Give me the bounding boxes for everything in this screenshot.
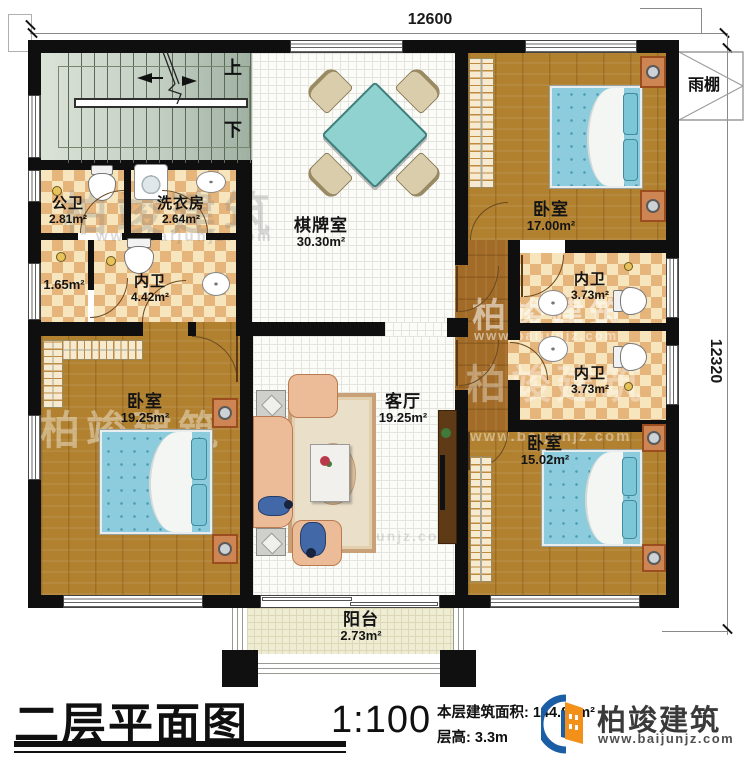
pillow — [191, 438, 207, 480]
window — [666, 345, 679, 405]
wall — [447, 318, 468, 337]
floor-height-value: 3.3m — [475, 730, 508, 746]
sink — [202, 272, 230, 296]
title-underline — [14, 741, 346, 747]
closet-floor — [41, 240, 88, 322]
pillow — [191, 484, 207, 526]
sink — [538, 336, 568, 362]
wall — [508, 380, 520, 420]
wall — [520, 323, 679, 331]
dimension-line-right — [727, 33, 728, 635]
door-leaf — [456, 340, 458, 386]
floor-area-label: 本层建筑面积: — [437, 705, 529, 721]
pillow — [622, 457, 637, 496]
balcony-railing — [232, 662, 468, 674]
sliding-door-panel — [350, 602, 438, 606]
window — [28, 170, 41, 202]
bed-sheet — [587, 88, 624, 186]
bed — [100, 430, 212, 534]
extension-line — [662, 631, 727, 632]
floor-height-label: 层高: — [437, 730, 471, 746]
side-table — [256, 528, 286, 556]
brand-website: www.baijunjz.com — [598, 731, 734, 746]
nightstand — [642, 424, 666, 452]
wall — [666, 405, 679, 608]
canopy-label: 雨棚 — [688, 71, 720, 95]
wardrobe — [43, 340, 63, 408]
wall — [28, 40, 41, 95]
balcony-floor — [247, 608, 453, 654]
window — [666, 258, 679, 318]
plant — [441, 428, 451, 438]
wall — [455, 240, 468, 265]
floorplan-page: { "plan": { "dim_top": "12600", "dim_rig… — [0, 0, 750, 763]
window — [28, 415, 41, 480]
stair-direction-arrow — [135, 50, 199, 110]
window — [490, 595, 640, 608]
stairs-down-label: 下 — [224, 116, 242, 142]
wall — [455, 40, 468, 253]
column — [440, 650, 476, 687]
pillow — [622, 500, 637, 539]
ceiling-lamp — [106, 256, 116, 266]
armchair — [288, 374, 338, 418]
bed — [550, 86, 642, 188]
wardrobe — [469, 58, 494, 188]
wall — [666, 40, 679, 258]
nightstand — [640, 190, 666, 222]
bed — [542, 450, 642, 546]
person-head — [306, 548, 316, 558]
brand-logo-icon — [541, 694, 595, 754]
drawing-scale: 1:100 — [331, 699, 431, 742]
nightstand — [642, 544, 666, 572]
window — [290, 40, 403, 53]
wall — [28, 595, 63, 608]
window — [525, 40, 637, 53]
window — [28, 263, 41, 320]
wall — [28, 480, 41, 608]
bed-sheet — [585, 452, 623, 544]
tv-screen — [440, 455, 445, 510]
extension-line — [640, 8, 702, 9]
door-leaf — [236, 336, 238, 382]
coffee-table — [310, 444, 350, 502]
wall — [238, 322, 385, 336]
sliding-door-panel — [262, 597, 352, 601]
door-leaf — [521, 255, 523, 297]
ceiling-lamp — [624, 382, 633, 391]
window — [63, 595, 203, 608]
nightstand — [212, 534, 238, 564]
sink — [196, 171, 226, 193]
wall — [28, 233, 78, 240]
extension-line — [701, 8, 702, 34]
opening-floor — [385, 322, 447, 336]
door-leaf — [456, 266, 458, 312]
dimension-top-value: 12600 — [380, 11, 480, 29]
wardrobe — [55, 340, 143, 360]
wall — [508, 240, 520, 340]
wall — [565, 240, 679, 253]
nightstand — [212, 398, 238, 428]
side-table — [256, 390, 286, 418]
wall — [188, 322, 196, 336]
ceiling-lamp — [52, 186, 62, 196]
dimension-right-value: 12320 — [706, 331, 724, 391]
bed-sheet — [149, 432, 192, 532]
wardrobe — [470, 456, 492, 582]
column — [222, 650, 258, 687]
wall — [240, 336, 253, 608]
ceiling-lamp — [56, 252, 66, 262]
pillow — [623, 93, 638, 135]
wall — [124, 160, 131, 240]
wall — [28, 322, 88, 336]
title-underline — [14, 751, 346, 753]
wall — [640, 595, 679, 608]
nightstand — [640, 56, 666, 88]
wall — [236, 160, 252, 336]
person-head — [284, 500, 293, 509]
pillow — [623, 139, 638, 181]
sink — [538, 290, 568, 316]
toilet — [124, 238, 154, 274]
dimension-line-top — [30, 33, 727, 34]
wall — [88, 322, 143, 336]
ceiling-lamp — [624, 262, 633, 271]
flower-decor — [320, 456, 330, 466]
stairs-up-label: 上 — [224, 54, 242, 80]
toilet — [613, 287, 647, 315]
window — [28, 95, 41, 158]
toilet — [613, 343, 647, 371]
